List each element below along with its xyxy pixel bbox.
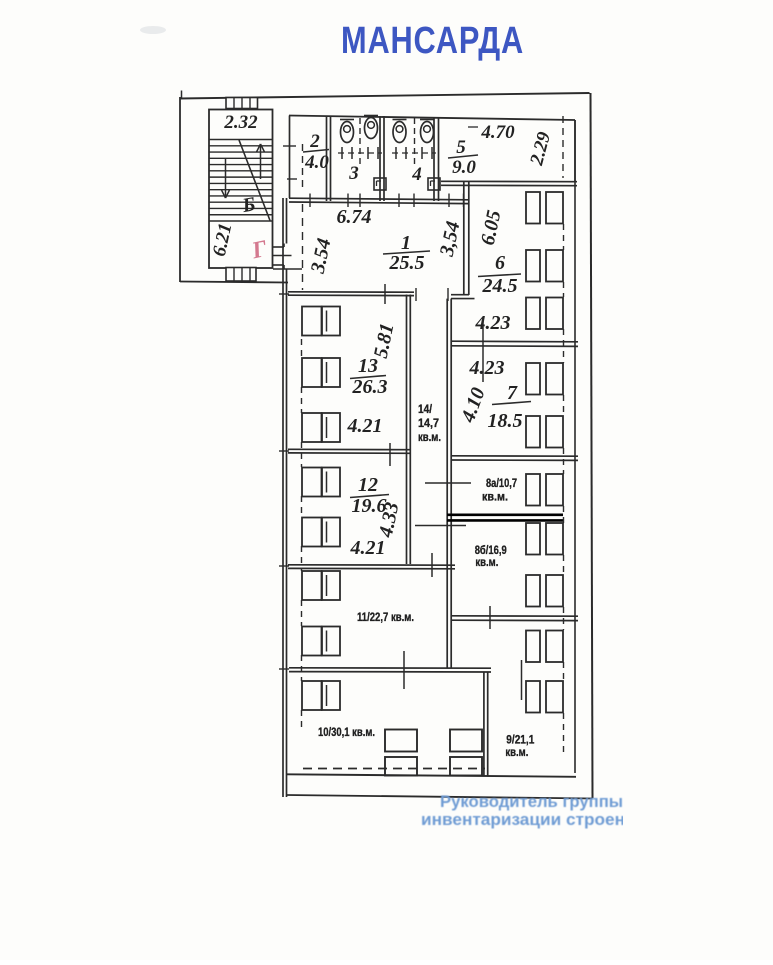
svg-text:4.21: 4.21	[350, 537, 386, 559]
svg-text:4.23: 4.23	[469, 357, 505, 379]
svg-text:4.21: 4.21	[347, 415, 383, 437]
svg-text:6.74: 6.74	[337, 206, 372, 228]
svg-text:25.5: 25.5	[389, 252, 425, 274]
svg-text:кв.м.: кв.м.	[482, 490, 508, 504]
svg-text:14,7: 14,7	[418, 416, 439, 430]
svg-text:4.23: 4.23	[475, 312, 511, 334]
svg-text:8а/10,7: 8а/10,7	[486, 476, 517, 490]
svg-text:2.32: 2.32	[223, 112, 258, 133]
svg-text:10/30,1 кв.м.: 10/30,1 кв.м.	[318, 725, 375, 739]
svg-text:5: 5	[456, 137, 466, 158]
svg-text:9.0: 9.0	[452, 157, 476, 178]
svg-text:4: 4	[411, 164, 422, 185]
svg-text:11/22,7 кв.м.: 11/22,7 кв.м.	[357, 610, 414, 624]
svg-text:2: 2	[309, 131, 320, 152]
svg-text:Руководитель группы: Руководитель группы	[440, 792, 623, 811]
svg-text:кв.м.: кв.м.	[475, 555, 498, 569]
svg-text:7: 7	[507, 382, 518, 404]
svg-text:кв.м.: кв.м.	[505, 745, 528, 759]
svg-text:3: 3	[348, 163, 359, 184]
svg-text:МАНСАРДА: МАНСАРДА	[341, 20, 524, 62]
svg-text:6: 6	[495, 252, 505, 274]
svg-text:13: 13	[358, 355, 378, 377]
svg-text:инвентаризации строен: инвентаризации строен	[421, 810, 625, 829]
svg-text:24.5: 24.5	[482, 275, 518, 297]
svg-text:26.3: 26.3	[352, 376, 388, 398]
svg-text:4.70: 4.70	[480, 122, 515, 143]
svg-text:кв.м.: кв.м.	[418, 430, 441, 444]
svg-text:1: 1	[401, 232, 411, 254]
svg-text:18.5: 18.5	[488, 410, 523, 432]
svg-text:12: 12	[358, 474, 378, 496]
svg-text:4.0: 4.0	[304, 152, 329, 173]
svg-text:14/: 14/	[418, 402, 433, 416]
